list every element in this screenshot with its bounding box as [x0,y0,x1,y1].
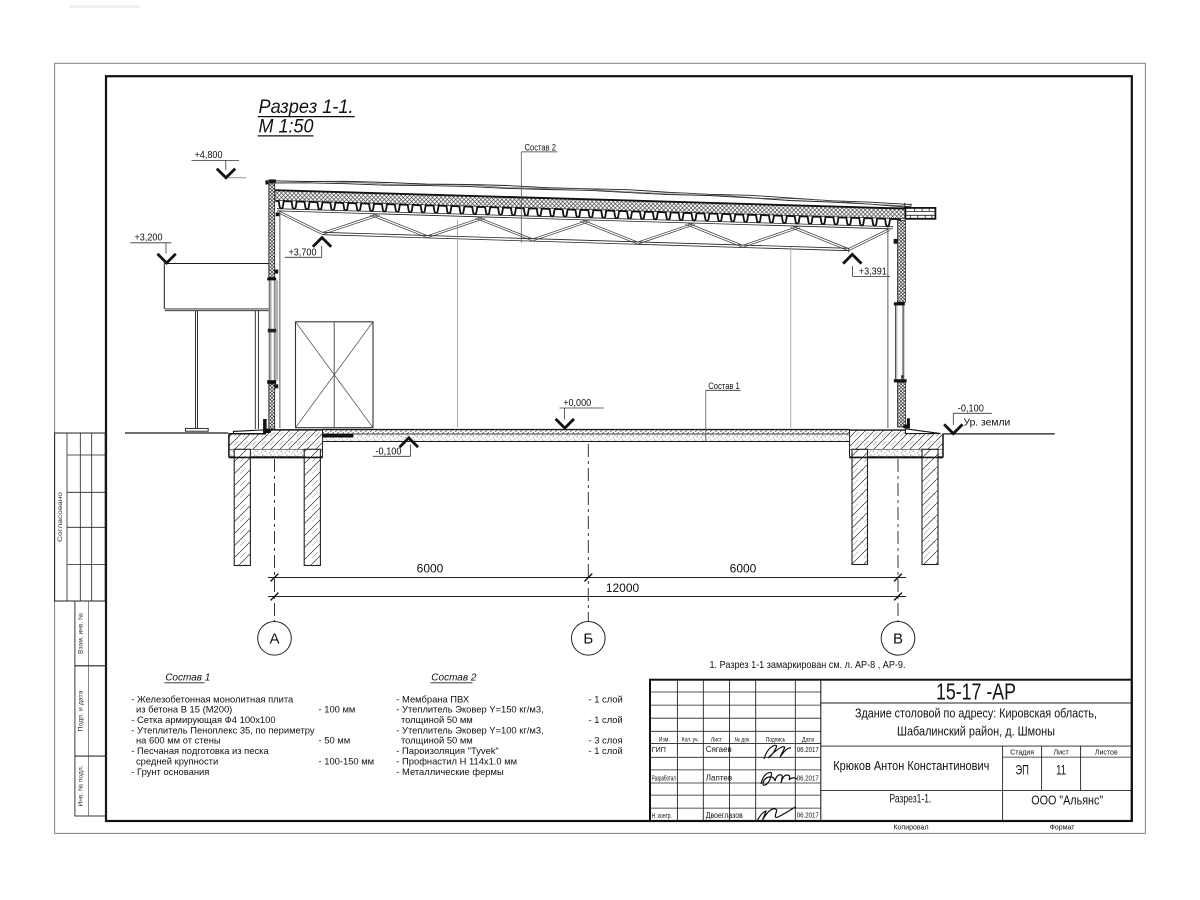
svg-text:15-17 -АР: 15-17 -АР [936,679,1016,705]
svg-text:Формат: Формат [1050,825,1076,832]
svg-text:- 50 мм: - 50 мм [319,735,351,746]
svg-text:Лаптев: Лаптев [706,774,732,783]
svg-text:А: А [269,631,279,648]
svg-text:+3,700: +3,700 [289,247,317,258]
svg-text:Состав 1: Состав 1 [165,673,210,684]
svg-text:+3,391: +3,391 [859,266,887,277]
svg-text:Состав 2: Состав 2 [431,673,477,684]
svg-text:- Песчаная подготовка из песка: - Песчаная подготовка из песка [131,745,269,756]
svg-text:Лист: Лист [1053,749,1069,756]
svg-text:Двоеглазов: Двоеглазов [706,811,743,820]
svg-text:Сягаев: Сягаев [706,745,732,754]
svg-text:ЭП: ЭП [1015,762,1029,778]
svg-text:+4,800: +4,800 [195,150,223,161]
svg-text:Согласовано: Согласовано [57,491,64,542]
svg-text:6000: 6000 [417,561,444,575]
svg-text:Шабалинский район, д. Шмоны: Шабалинский район, д. Шмоны [897,723,1055,738]
svg-text:М 1:50: М 1:50 [259,116,314,138]
svg-text:- Утеплитель Эковер Y=150 кг/м: - Утеплитель Эковер Y=150 кг/м3, [396,704,543,715]
svg-text:Н. контр.: Н. контр. [652,813,672,820]
svg-text:-0,100: -0,100 [376,446,402,457]
svg-text:06.2017: 06.2017 [797,747,819,754]
svg-text:- Профнастил Н 114х1.0 мм: - Профнастил Н 114х1.0 мм [396,755,517,766]
svg-text:Подп. и дата: Подп. и дата [77,690,84,732]
svg-text:ГИП: ГИП [652,747,666,754]
svg-text:В: В [893,631,903,648]
svg-text:Ур. земли: Ур. земли [964,418,1011,429]
svg-text:- 1 слой: - 1 слой [589,745,623,756]
svg-text:- Пароизоляция "Tyvek": - Пароизоляция "Tyvek" [396,745,499,756]
svg-text:Лист: Лист [711,737,722,743]
svg-text:12000: 12000 [606,581,640,595]
svg-text:- 100 мм: - 100 мм [319,704,356,715]
svg-text:- Утеплитель Эковер Y=100 кг/м: - Утеплитель Эковер Y=100 кг/м3, [396,724,543,735]
svg-text:Подпись: Подпись [766,737,786,743]
svg-text:11: 11 [1056,762,1066,778]
svg-text:- Утеплитель Пеноплекс 35, по: - Утеплитель Пеноплекс 35, по периметру [131,724,315,735]
svg-text:6000: 6000 [730,561,757,575]
svg-text:Б: Б [583,631,593,648]
svg-text:06.2017: 06.2017 [797,813,819,820]
svg-text:Изм.: Изм. [659,737,670,743]
svg-text:06.2017: 06.2017 [797,775,819,782]
svg-text:Здание столовой по адресу: Кир: Здание столовой по адресу: Кировская обл… [855,705,1097,720]
svg-text:1. Разрез 1-1 замаркирован см.: 1. Разрез 1-1 замаркирован см. л. АР-8 ,… [710,659,906,671]
svg-text:Стадия: Стадия [1010,749,1034,756]
svg-text:Разрез1-1.: Разрез1-1. [889,791,931,805]
svg-text:ООО "Альянс": ООО "Альянс" [1031,792,1103,807]
svg-text:№ док.: № док. [735,736,751,743]
svg-text:- Металлические фермы: - Металлические фермы [396,766,504,777]
svg-text:- 100-150 мм: - 100-150 мм [319,755,375,766]
svg-text:+3,200: +3,200 [135,233,163,244]
svg-text:- 1 слой: - 1 слой [589,693,623,704]
svg-text:Взам. инв. №: Взам. инв. № [77,613,84,654]
svg-text:Дата: Дата [802,737,815,743]
svg-text:Инв. № подл.: Инв. № подл. [77,765,84,806]
svg-text:Крюков Антон Константинович: Крюков Антон Константинович [833,758,989,773]
svg-text:Копировал: Копировал [893,825,928,832]
svg-text:-0,100: -0,100 [958,403,984,414]
svg-text:+0,000: +0,000 [563,398,591,409]
svg-text:- 1 слой: - 1 слой [589,714,623,725]
svg-text:из бетона В 15 (М200): из бетона В 15 (М200) [131,704,232,715]
svg-text:- Грунт основания: - Грунт основания [131,766,209,777]
svg-text:средней крупности: средней крупности [131,755,218,766]
svg-text:Разработал: Разработал [652,775,676,783]
svg-text:Листов: Листов [1095,749,1118,756]
svg-text:Кол. уч.: Кол. уч. [682,737,699,743]
